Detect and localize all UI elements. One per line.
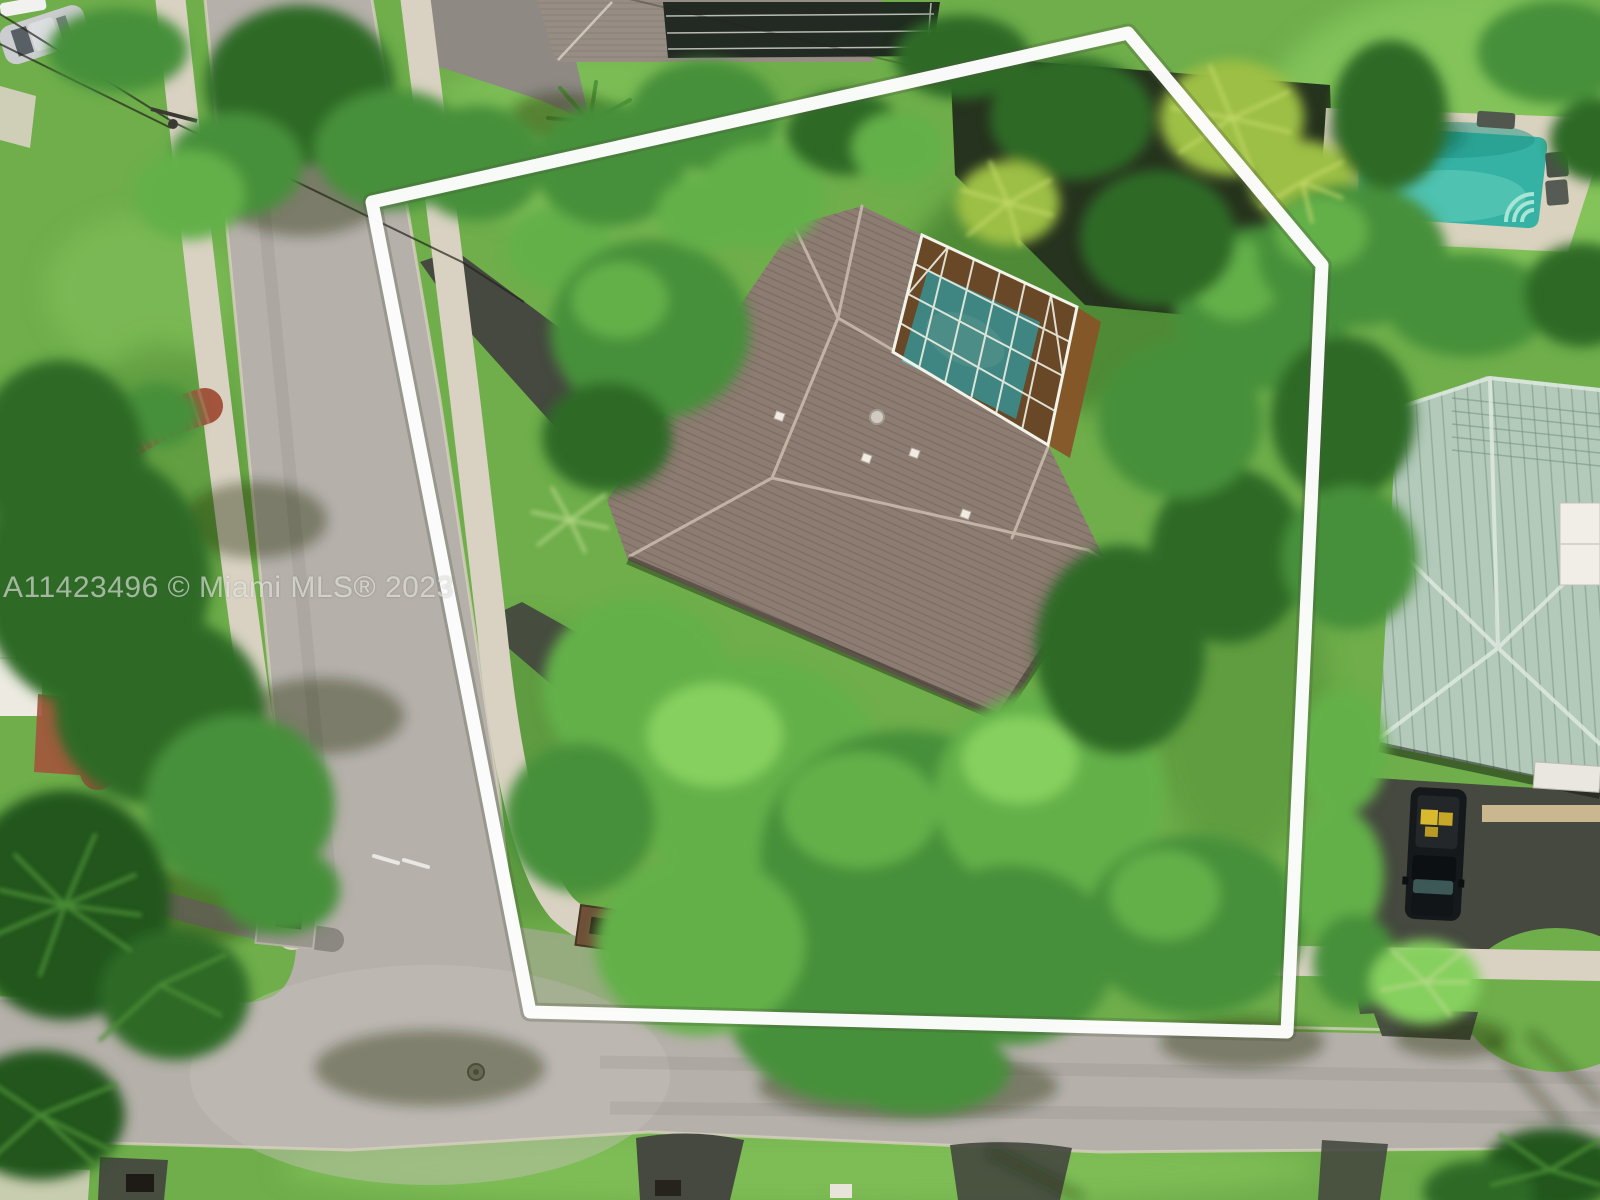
black-pickup-truck: [1400, 786, 1469, 921]
south-driveway-apron: [950, 1142, 1072, 1200]
carport-roof-strip: [1533, 762, 1600, 793]
truck-hood: [1411, 893, 1454, 917]
utility-pole: [168, 119, 178, 129]
yellow-cargo: [1420, 809, 1438, 825]
truck-windshield: [1413, 879, 1454, 895]
tan-paver-walk: [1482, 805, 1600, 822]
mls-watermark: A11423496 © Miami MLS® 2023: [3, 571, 454, 605]
screenshot-root: A11423496 © Miami MLS® 2023: [0, 0, 1600, 1200]
truck-cab-roof: [1411, 855, 1456, 883]
south-driveway-apron: [636, 1133, 744, 1200]
south-driveway-apron: [1318, 1140, 1388, 1200]
